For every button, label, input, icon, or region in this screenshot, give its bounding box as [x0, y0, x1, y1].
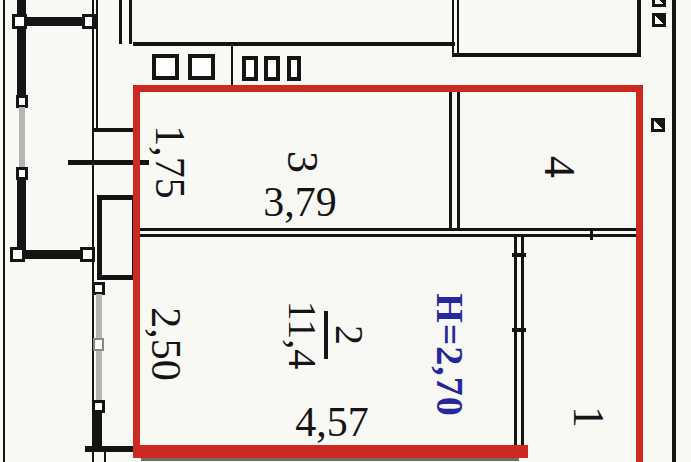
kitchen-fixture [264, 56, 280, 81]
kitchen-fixture [188, 54, 215, 80]
balcony-rail-cap [82, 14, 97, 29]
wall-room3-room2 [140, 234, 636, 237]
wall-line [231, 46, 233, 86]
wall-line [104, 452, 106, 462]
wall-room3-room4 [449, 92, 452, 230]
wall-right-outer [672, 0, 676, 462]
outline-left [133, 85, 140, 458]
outline-top [133, 85, 643, 92]
room2-number-area-fraction: 2 11,4 [280, 287, 370, 383]
window-hardware [93, 338, 104, 351]
room3-width-label: 3,79 [240, 180, 360, 226]
room1-number: 1 [566, 395, 610, 439]
kitchen-fixture [242, 56, 258, 81]
window-glass [19, 107, 25, 168]
door-jamb-tick [512, 328, 526, 332]
wall-tick [92, 128, 133, 132]
floor-plan: 1,75 3 3,79 4 2,50 2 11,4 4,57 Н=2,70 1 [0, 0, 691, 462]
room2-number: 2 [324, 311, 370, 359]
wall-balcony-left-bottom [17, 179, 26, 257]
wall-line [92, 452, 94, 462]
wall-line [92, 0, 94, 130]
wall-line [96, 0, 98, 130]
dimension-label-175: 1,75 [148, 102, 192, 222]
balcony-inner-wall [141, 458, 519, 461]
balcony-rail-bottom [23, 250, 83, 259]
wall-joint-tick [590, 228, 593, 240]
room3-number: 3 [280, 140, 324, 184]
section-marker-icon [651, 118, 665, 132]
wall-segment [94, 412, 102, 448]
wall-room2-room1 [514, 237, 517, 445]
wall-room3-room4 [457, 92, 460, 230]
section-marker-icon [652, 0, 666, 7]
wall-line [129, 0, 132, 44]
door-jamb-tick [512, 253, 526, 257]
wall-room2-room1 [521, 237, 524, 445]
duct-shaft [97, 195, 137, 280]
room2-area: 11,4 [280, 287, 324, 383]
room4-number: 4 [535, 142, 581, 192]
wall-left-outer [3, 0, 5, 462]
wall-room3-room2 [140, 228, 636, 231]
section-marker-icon [652, 13, 666, 27]
wall-line [119, 0, 122, 44]
ceiling-height-label: Н=2,70 [430, 275, 470, 435]
wall-line [457, 0, 459, 53]
balcony-rail-top [25, 17, 85, 26]
room2-width-label: 4,57 [272, 400, 392, 444]
outline-bottom [133, 445, 528, 452]
dimension-label-250: 2,50 [144, 284, 188, 404]
kitchen-fixture [287, 56, 301, 81]
room-top-right [452, 0, 641, 57]
kitchen-fixture [152, 54, 179, 80]
outline-right [636, 85, 643, 462]
wall-top-horizontal [133, 42, 455, 46]
